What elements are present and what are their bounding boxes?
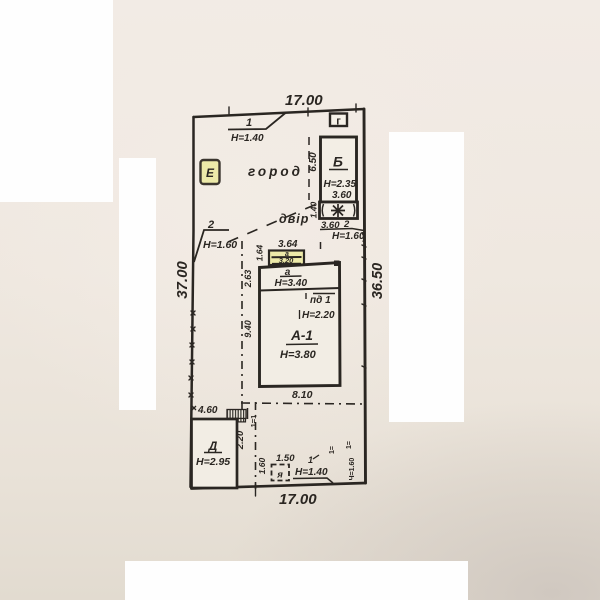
svg-text:Н=1.40: Н=1.40 (295, 467, 328, 478)
svg-text:Д: Д (208, 439, 218, 453)
svg-text:А-1: А-1 (290, 328, 313, 343)
svg-text:город: город (248, 164, 303, 179)
svg-text:1=: 1= (346, 441, 353, 449)
svg-text:37.00: 37.00 (174, 261, 191, 299)
svg-text:4.60: 4.60 (197, 405, 218, 416)
svg-text:6.50: 6.50 (308, 152, 319, 172)
svg-text:3.20: 3.20 (279, 256, 294, 265)
svg-text:Н=3.40: Н=3.40 (275, 278, 308, 289)
svg-text:1.64: 1.64 (255, 244, 265, 261)
svg-text:Н=2.20: Н=2.20 (302, 310, 335, 321)
svg-text:Е: Е (206, 166, 215, 180)
svg-text:1.50: 1.50 (276, 453, 295, 464)
svg-text:2: 2 (207, 219, 214, 231)
svg-text:Н=3.80: Н=3.80 (280, 349, 317, 361)
svg-text:1: 1 (308, 455, 313, 465)
svg-text:3.60: 3.60 (332, 190, 352, 201)
svg-text:я: я (276, 470, 283, 481)
svg-text:Н=1.60: Н=1.60 (332, 231, 365, 242)
svg-text:г: г (336, 116, 341, 128)
svg-text:Н=1.40: Н=1.40 (231, 133, 264, 144)
svg-text:1=1: 1=1 (249, 415, 258, 428)
svg-text:Ч=1.60: Ч=1.60 (349, 458, 356, 481)
svg-text:3.64: 3.64 (278, 239, 298, 250)
svg-text:1.40: 1.40 (309, 201, 319, 218)
svg-text:пд 1: пд 1 (310, 295, 331, 306)
svg-text:1=: 1= (329, 446, 336, 454)
svg-text:9.40: 9.40 (243, 320, 253, 338)
svg-text:36.50: 36.50 (370, 263, 386, 299)
svg-text:Н=2.35: Н=2.35 (324, 179, 357, 190)
svg-text:Б: Б (333, 154, 343, 170)
svg-text:17.00: 17.00 (285, 92, 323, 109)
svg-text:8.10: 8.10 (292, 389, 313, 401)
svg-text:1: 1 (246, 117, 252, 129)
svg-text:17.00: 17.00 (279, 491, 317, 508)
svg-text:Н=2.95: Н=2.95 (196, 456, 230, 468)
svg-text:1.60: 1.60 (257, 457, 267, 474)
svg-text:2.63: 2.63 (243, 270, 253, 289)
